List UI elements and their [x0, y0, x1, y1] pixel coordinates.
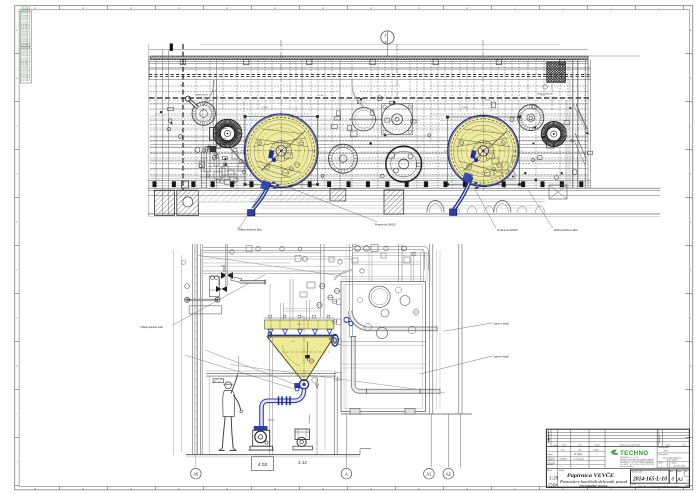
svg-text:18: 18 [274, 8, 276, 10]
svg-text:10: 10 [466, 488, 468, 490]
svg-text:20: 20 [226, 488, 228, 490]
svg-text:Priklop spiralne vode: Priklop spiralne vode [141, 326, 164, 329]
svg-text:D 2300: D 2300 [462, 107, 468, 109]
svg-text:A1: A1 [676, 477, 683, 483]
svg-text:0: 0 [672, 477, 675, 483]
svg-text:projekta: projekta [547, 463, 553, 466]
svg-text:6: 6 [562, 8, 563, 10]
svg-text:Naslov: Naslov [559, 470, 564, 472]
svg-text:Pmazni kos DN125: Pmazni kos DN125 [497, 229, 518, 232]
svg-text:28: 28 [34, 488, 36, 490]
svg-text:2014-165-L-10: 2014-165-L-10 [632, 477, 667, 483]
svg-text:Izpust v kanal: Izpust v kanal [494, 356, 509, 359]
svg-text:Datum: Datum [666, 443, 672, 446]
svg-text:2: 2 [658, 488, 659, 490]
svg-text:3: 3 [384, 34, 386, 38]
svg-text:Številka načrta: Številka načrta [632, 470, 643, 473]
svg-text:projektant: projektant [547, 458, 555, 461]
svg-text:6: 6 [562, 488, 563, 490]
svg-text:A0: A0 [193, 471, 199, 476]
svg-text:D 2300: D 2300 [262, 107, 268, 109]
svg-text:Sprememba: Sprememba [548, 435, 550, 444]
svg-text:Projekt: Projekt [594, 443, 600, 446]
svg-text:MIXER DRUM: MIXER DRUM [196, 95, 208, 97]
svg-text:Kraj/struc. pre spremembe: Kraj/struc. pre spremembe [620, 443, 640, 446]
svg-text:+1.385: +1.385 [318, 95, 323, 97]
svg-text:1:20: 1:20 [549, 477, 559, 482]
svg-text:Pmazni kos DN125: Pmazni kos DN125 [375, 223, 396, 226]
svg-text:24: 24 [130, 8, 132, 10]
svg-text:20: 20 [226, 8, 228, 10]
svg-text:oznaka: oznaka [553, 445, 558, 447]
svg-text:4: 4 [610, 488, 611, 490]
svg-text:+1.222: +1.222 [484, 100, 490, 102]
svg-text:8: 8 [514, 488, 515, 490]
svg-text:22: 22 [178, 488, 180, 490]
svg-text:Merilo: Merilo [547, 469, 552, 472]
svg-text:Ime: Ime [579, 444, 582, 446]
svg-text:A1: A1 [426, 471, 432, 476]
svg-text:St.n: St.n [561, 448, 564, 451]
svg-text:G. Kyra: G. Kyra [574, 454, 583, 456]
svg-text:2: 2 [658, 8, 659, 10]
svg-text:december 2015: december 2015 [674, 465, 686, 468]
svg-text:1: 1 [661, 466, 662, 468]
svg-text:12: 12 [418, 488, 420, 490]
svg-text:26: 26 [82, 8, 84, 10]
svg-text:A: A [345, 471, 348, 476]
svg-text:14: 14 [370, 488, 372, 490]
svg-text:Tehnološka: Tehnološka [309, 413, 311, 424]
svg-text:Podpis: Podpis [593, 449, 599, 451]
svg-text:Ime: Ime [579, 449, 582, 451]
svg-text:Datum: Datum [562, 443, 568, 446]
svg-text:S-0092: S-0092 [560, 459, 568, 461]
svg-text:28: 28 [34, 8, 36, 10]
svg-text:22: 22 [178, 8, 180, 10]
svg-text:strojne opreme: strojne opreme [666, 459, 677, 462]
svg-text:12: 12 [418, 8, 420, 10]
svg-text:14: 14 [370, 8, 372, 10]
svg-text:V. Čampelj: V. Čampelj [573, 458, 584, 461]
svg-text:Izdelal: Izdelal [547, 454, 553, 456]
svg-text:Ime: Ime [683, 444, 686, 446]
svg-text:16: 16 [322, 488, 324, 490]
svg-text:Vrsta načrta:: Vrsta načrta: [659, 453, 669, 456]
svg-text:Priklop vzduha in filtra: Priklop vzduha in filtra [238, 228, 262, 231]
svg-text:Priklop vzduha in filtra: Priklop vzduha in filtra [554, 229, 578, 232]
svg-text:24: 24 [130, 488, 132, 490]
svg-text:18: 18 [274, 488, 276, 490]
svg-text:26: 26 [82, 488, 84, 490]
svg-text:4.12: 4.12 [298, 460, 307, 465]
svg-text:A2: A2 [446, 471, 452, 476]
svg-text:Izpust v kanal: Izpust v kanal [494, 323, 509, 326]
svg-text:2014_165_L_10_Postavitev delov: 2014_165_L_10_Postavitev delovnih posod.… [637, 485, 680, 488]
svg-text:10: 10 [466, 8, 468, 10]
svg-text:promazne mase: promazne mase [578, 484, 608, 488]
svg-text:J: J [16, 462, 17, 464]
svg-text:J: J [690, 462, 691, 464]
svg-text:Sprememba: Sprememba [659, 435, 661, 444]
svg-text:16: 16 [322, 8, 324, 10]
svg-text:Merilo: Merilo [659, 463, 663, 465]
svg-text:CF: file: CF: file [632, 484, 637, 486]
svg-text:4: 4 [384, 40, 386, 44]
svg-text:Vrsta projekta: Vrsta projekta [659, 446, 669, 449]
svg-text:TECHNO: TECHNO [620, 450, 649, 457]
svg-text:Papirnica VEVČE: Papirnica VEVČE [567, 473, 615, 479]
svg-text:4.02: 4.02 [258, 462, 268, 468]
svg-text:DN150: DN150 [268, 420, 275, 422]
svg-text:4: 4 [610, 8, 611, 10]
svg-text:8: 8 [514, 8, 515, 10]
